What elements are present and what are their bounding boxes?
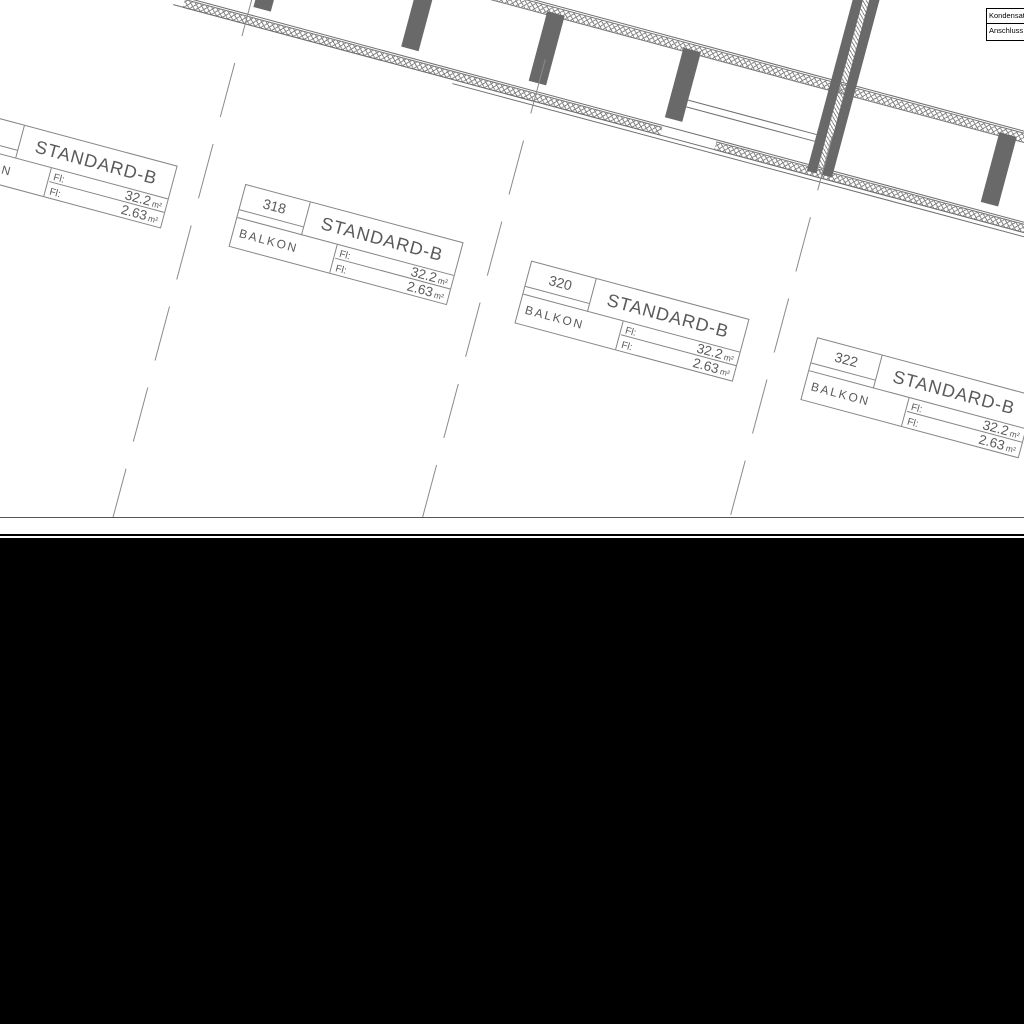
area-label: Fl: [619,339,633,355]
wall-pier [253,0,289,12]
wall-pier [401,0,437,51]
wall-pier [665,48,701,122]
sheet-edge-line [0,517,1024,518]
area-unit: m² [432,288,445,304]
legend-note-box: Kondensat Anschluss [986,8,1024,41]
floor-plan-drawing: 316STANDARD-BBALKONFl:32.2m²Fl:2.63m²318… [0,0,1024,518]
area-unit: m² [1004,441,1017,457]
parapet-hatch-segment [714,141,1024,321]
room-label-table: 320STANDARD-BBALKONFl:32.2m²Fl:2.63m² [514,260,749,381]
area-unit: m² [146,211,159,227]
area-label: Fl: [48,186,62,202]
room-label-table: 322STANDARD-BBALKONFl:32.2m²Fl:2.63m² [800,337,1024,458]
grid-line [101,0,257,518]
panel-divider-line [0,534,1024,536]
legend-note-line1: Kondensat [987,9,1024,24]
bay-window-line [688,100,817,135]
grid-line [964,213,1024,518]
legend-note-line2: Anschluss [987,24,1024,38]
blank-panel [0,538,1024,1024]
room-label-table: 316STANDARD-BBALKONFl:32.2m²Fl:2.63m² [0,107,178,228]
room-label-table: 318STANDARD-BBALKONFl:32.2m²Fl:2.63m² [229,184,464,305]
area-label: Fl: [905,416,919,432]
area-unit: m² [718,364,731,380]
area-label: Fl: [334,262,348,278]
parapet-top-line [176,0,1024,322]
wall-pier [529,11,565,85]
wall-pier [981,132,1017,206]
floor-plan-viewport: 316STANDARD-BBALKONFl:32.2m²Fl:2.63m²318… [0,0,1024,518]
